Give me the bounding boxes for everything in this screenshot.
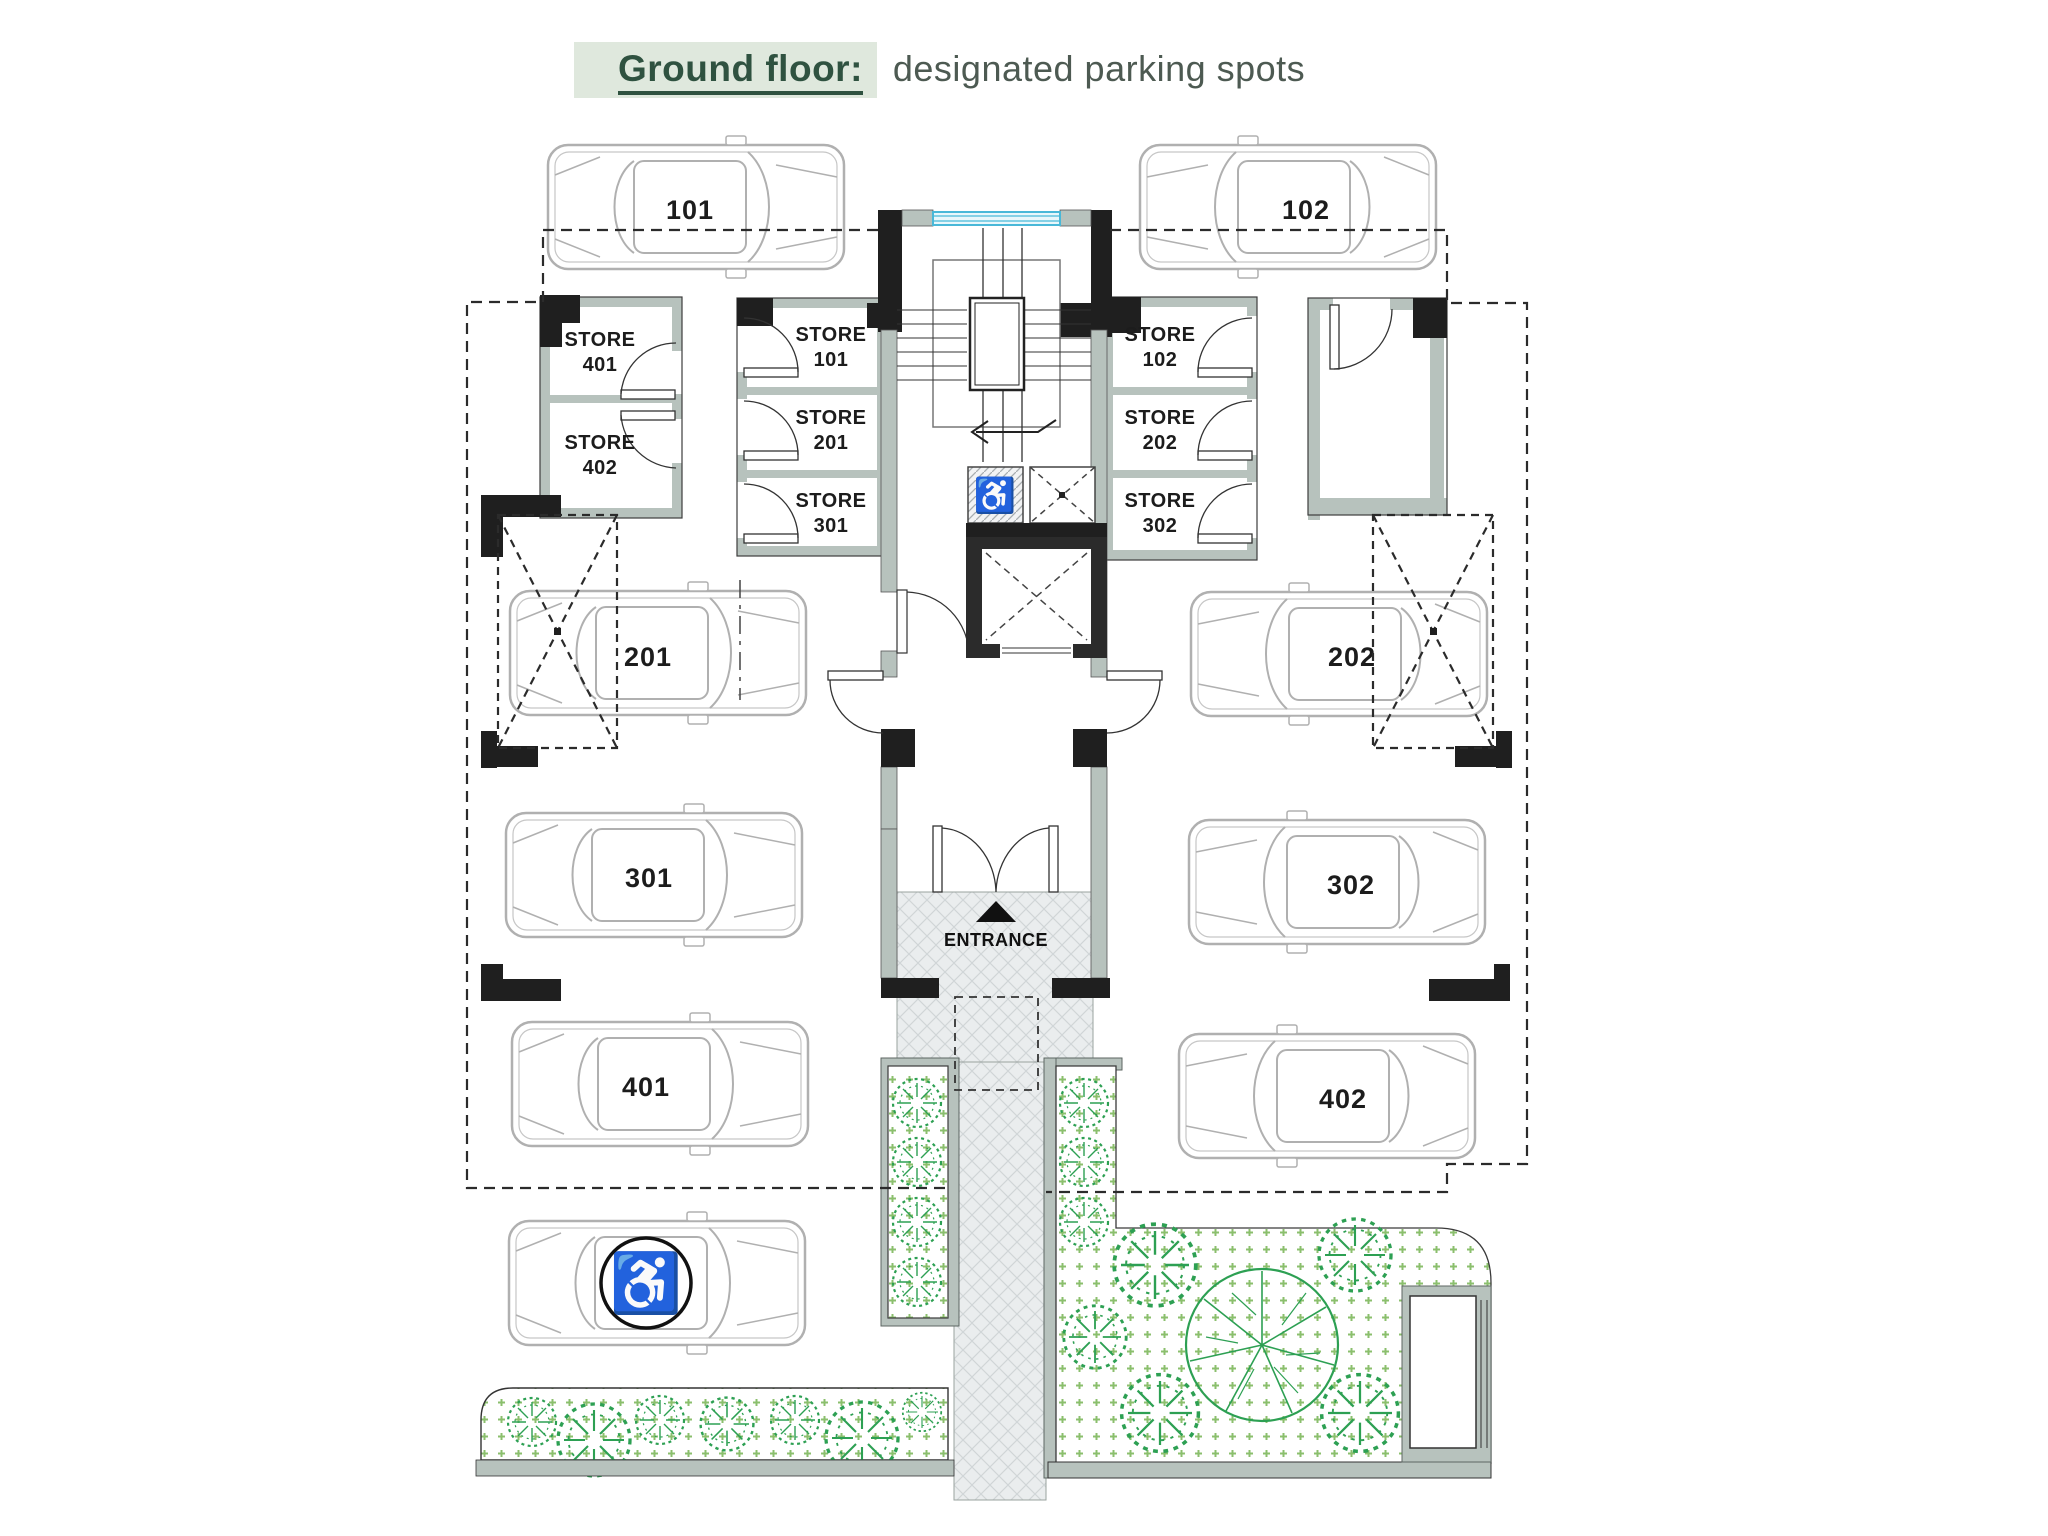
spot-102-label: 102: [1282, 195, 1330, 225]
parking-spot-402: 402: [1179, 1025, 1475, 1167]
parking-spot-101: 101: [548, 136, 844, 278]
floor-plan-drawing: STORE401 STORE402: [0, 0, 2048, 1536]
parking-spot-102: 102: [1140, 136, 1436, 278]
entrance-label: ENTRANCE: [944, 930, 1048, 950]
spot-402-label: 402: [1319, 1084, 1367, 1114]
entrance-door: [933, 826, 1058, 892]
store-rooms-101-201-301: STORE101 STORE201 STORE301: [737, 298, 892, 556]
parking-spot-accessible: ♿: [509, 1212, 805, 1354]
cross-center-dot: [554, 628, 561, 635]
spot-401-label: 401: [622, 1072, 670, 1102]
spot-302-label: 302: [1327, 870, 1375, 900]
spot-201-label: 201: [624, 642, 672, 672]
spot-301-label: 301: [625, 863, 673, 893]
page-title: Ground floor:designated parking spots: [574, 42, 1305, 98]
sidewalk-right: [1048, 1462, 1491, 1478]
garden-left-strip: [881, 1058, 959, 1326]
title-subtitle: designated parking spots: [893, 48, 1305, 89]
stair-direction-arrow: [972, 420, 1056, 443]
parking-spot-202: 202: [1191, 583, 1487, 725]
wheelchair-icon: ♿: [610, 1250, 682, 1316]
parking-spot-301: 301: [506, 804, 802, 946]
elevator-shaft: [966, 537, 1107, 658]
parking-spot-302: 302: [1189, 811, 1485, 953]
title-text: Ground floor:: [618, 48, 863, 95]
door-to-right-parking: [1107, 671, 1162, 733]
spot-101-label: 101: [666, 195, 714, 225]
garden-bottom-strip: [476, 1388, 954, 1476]
parking-spot-201: 201: [510, 582, 806, 724]
sidewalk-left: [476, 1460, 954, 1476]
spot-202-label: 202: [1328, 642, 1376, 672]
door-to-left-parking: [828, 671, 883, 733]
accessible-lift: ♿: [968, 467, 1023, 523]
store-rooms-401-402: STORE401 STORE402: [481, 295, 682, 557]
wheelchair-icon: ♿: [974, 476, 1016, 515]
stair-window: [933, 212, 1060, 225]
floor-plan-page: Ground floor:designated parking spots: [0, 0, 2048, 1536]
parking-spot-401: 401: [512, 1013, 808, 1155]
garden-gate: [1402, 1286, 1491, 1462]
staircase: [897, 228, 1091, 462]
door-lobby-left: [897, 590, 969, 655]
store-rooms-102-202-302: STORE102 STORE202 STORE302: [1103, 297, 1257, 560]
title-highlight: Ground floor:: [574, 42, 877, 98]
room-top-right: [1308, 298, 1447, 520]
cross-center-dot: [1430, 628, 1437, 635]
service-shaft: [1030, 467, 1095, 523]
